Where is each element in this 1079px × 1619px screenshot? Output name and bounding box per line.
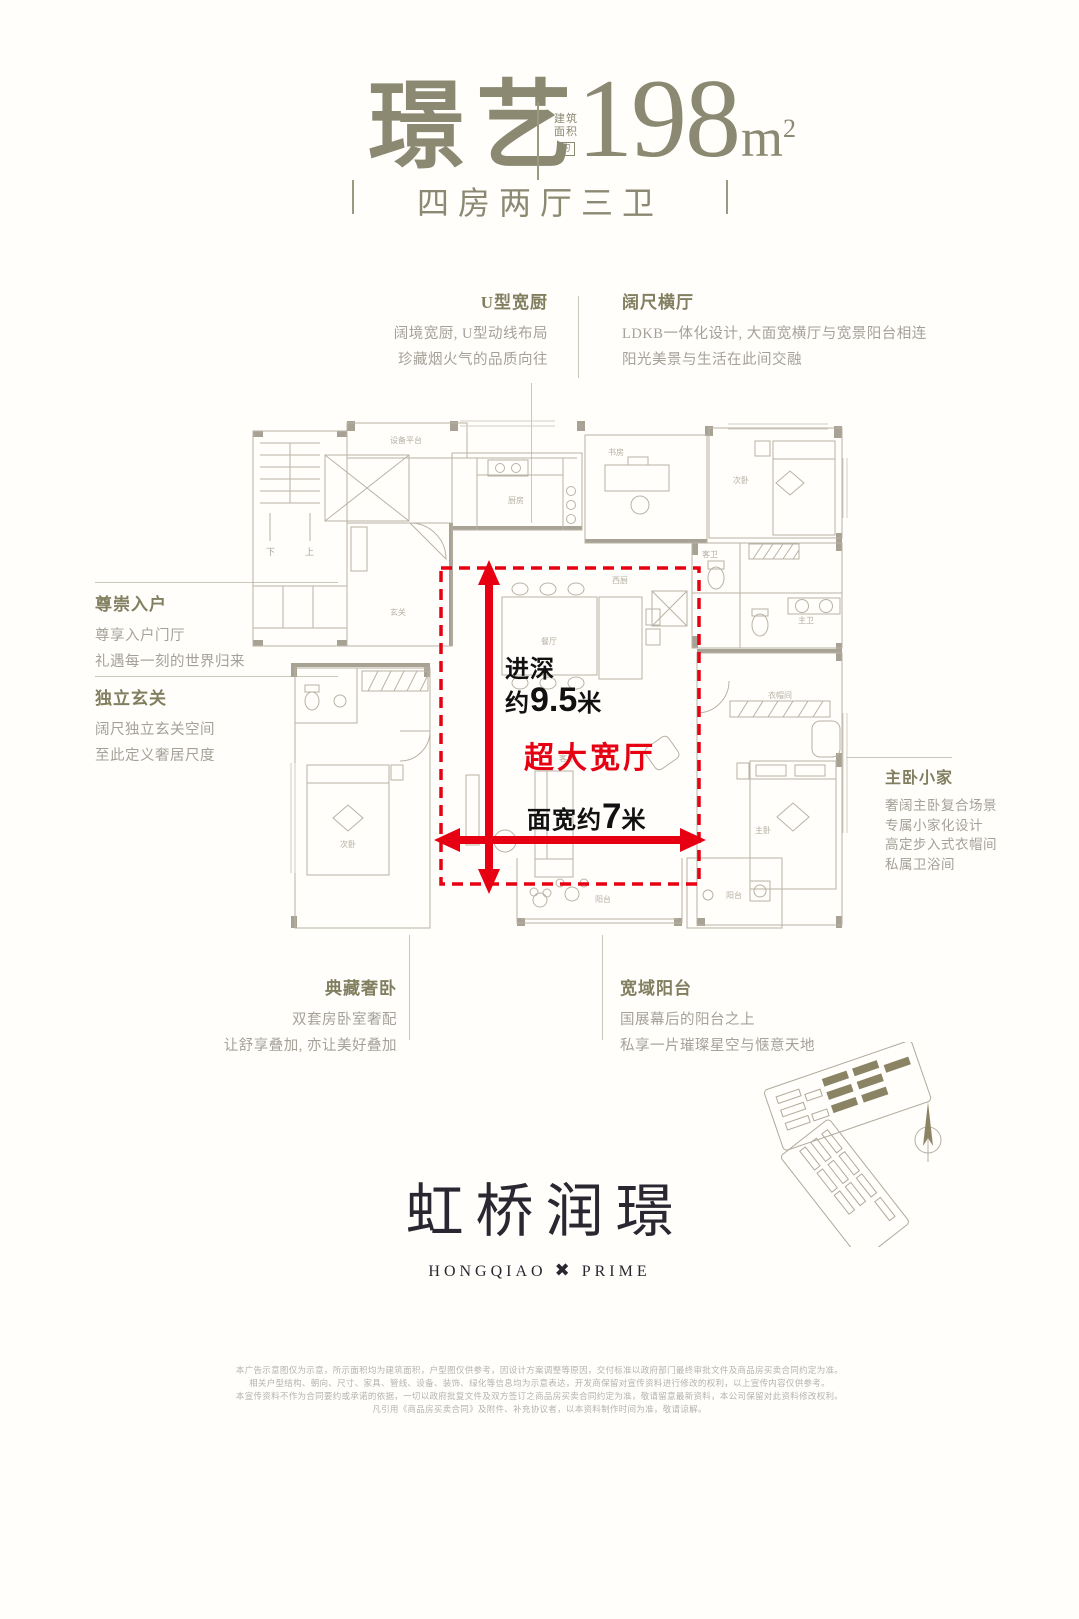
leader-line-balcony [602,935,603,1040]
svg-text:主卧: 主卧 [755,825,771,835]
callout-master-line1: 奢阔主卧复合场景 [885,796,1055,816]
site-wing-lower [780,1118,910,1247]
site-plan [735,1042,950,1247]
svg-text:主卫: 主卫 [798,615,814,625]
svg-text:厨房: 厨房 [508,495,524,505]
brand-name-en: HONGQIAO✖PRIME [0,1260,1079,1281]
callout-separator-line [578,296,579,378]
leader-line-bedroom [409,935,410,1040]
disclaimer-text: 本广告示意图仅为示意，所示面积均为建筑面积，户型图仅供参考，因设计方案调整等原因… [160,1364,919,1416]
header-divider [537,102,539,180]
depth-label: 进深 [505,656,555,683]
depth-approx: 约 [505,690,530,717]
brand-en-right: PRIME [582,1263,651,1280]
subtitle-row: 四房两厅三卫 [352,178,728,218]
width-arrowhead-right [680,828,706,852]
svg-text:衣帽间: 衣帽间 [768,690,792,700]
callout-bedroom-title: 典藏奢卧 [215,974,397,999]
callout-master-line2: 专属小家化设计 [885,816,1055,836]
disclaimer-line2: 相关户型结构、朝向、尺寸、家具、管线、设备、装饰、绿化等信息均为示意表达，开发商… [160,1377,919,1390]
width-prefix: 面宽约 [527,807,602,834]
area-unit: m2 [741,109,796,168]
callout-bedroom-line1: 双套房卧室奢配 [215,1007,397,1033]
area-prefix: 建筑 面积 约 [553,113,579,156]
depth-arrowhead-bottom [478,869,500,894]
disclaimer-line4: 凡引用《商品房买卖合同》及附件、补充协议者，以本资料制作时间为准，敬请谅解。 [160,1403,919,1416]
callout-bedroom: 典藏奢卧 双套房卧室奢配 让舒享叠加, 亦让美好叠加 [215,974,397,1059]
width-measurement: 面宽约7米 [527,797,646,837]
brand-x-icon: ✖ [555,1260,574,1280]
callout-hall-title: 阔尺横厅 [622,288,932,313]
brand-en-left: HONGQIAO [428,1263,546,1280]
callout-hall-line1: LDKB一体化设计, 大面宽横厅与宽景阳台相连 [622,321,932,347]
callout-hall: 阔尺横厅 LDKB一体化设计, 大面宽横厅与宽景阳台相连 阳光美景与生活在此间交… [622,288,932,373]
width-arrowhead-left [434,828,460,852]
depth-value: 9.5 [530,681,577,719]
hall-highlight-label: 超大宽厅 [524,733,656,777]
layout-subtitle: 四房两厅三卫 [352,178,728,224]
width-unit: 米 [621,807,646,834]
depth-unit: 米 [577,690,602,717]
svg-text:书房: 书房 [608,447,624,457]
callout-master: 主卧小家 奢阔主卧复合场景 专属小家化设计 高定步入式衣帽间 私属卫浴间 [885,764,1055,874]
svg-text:阳台: 阳台 [595,894,611,904]
svg-text:餐厅: 餐厅 [541,637,557,646]
svg-text:客卫: 客卫 [702,549,718,559]
callout-master-line3: 高定步入式衣帽间 [885,835,1055,855]
callout-kitchen: U型宽厨 阔境宽厨, U型动线布局 珍藏烟火气的品质向往 [340,288,548,373]
callout-master-title: 主卧小家 [885,764,1055,788]
disclaimer-line3: 本宣传资料不作为合同要约或承诺的依据，一切以政府批复文件及双方签订之商品房买卖合… [160,1390,919,1403]
callout-kitchen-line2: 珍藏烟火气的品质向往 [340,347,548,373]
subtitle-bar-right [726,180,728,214]
measure-overlay [434,560,706,894]
svg-text:玄关: 玄关 [390,607,406,617]
disclaimer-line1: 本广告示意图仅为示意，所示面积均为建筑面积，户型图仅供参考，因设计方案调整等原因… [160,1364,919,1377]
area-prefix-line2: 面积 [553,126,579,139]
callout-bedroom-line2: 让舒享叠加, 亦让美好叠加 [215,1033,397,1059]
callout-hall-line2: 阳光美景与生活在此间交融 [622,347,932,373]
area-figure: 198m2 [577,58,796,181]
leader-line-master [846,757,952,758]
site-wing-upper [763,1042,931,1151]
depth-arrowhead-top [478,560,500,585]
area-approx-box: 约 [558,142,575,156]
callout-balcony-title: 宽域阳台 [620,974,880,999]
callout-kitchen-title: U型宽厨 [340,288,548,313]
compass-icon [915,1102,941,1162]
svg-text:阳台: 阳台 [726,890,742,900]
poster-page: 璟艺 建筑 面积 约 198m2 四房两厅三卫 U型宽厨 阔境宽厨, U型动线布… [0,0,1079,1619]
depth-measurement: 进深 约9.5米 [505,655,602,719]
svg-text:上: 上 [305,547,314,557]
svg-text:次卧: 次卧 [340,839,356,849]
unit-name-title: 璟艺 [368,74,584,180]
width-value: 7 [602,797,621,836]
callout-kitchen-line1: 阔境宽厨, U型动线布局 [340,321,548,347]
svg-text:设备平台: 设备平台 [390,435,422,445]
svg-text:次卧: 次卧 [733,475,749,485]
area-value: 198 [577,58,739,181]
svg-text:下: 下 [266,547,275,557]
callout-master-line4: 私属卫浴间 [885,855,1055,875]
svg-text:西厨: 西厨 [612,576,628,585]
area-prefix-line1: 建筑 [553,113,579,126]
callout-balcony-line1: 国展幕后的阳台之上 [620,1007,880,1033]
